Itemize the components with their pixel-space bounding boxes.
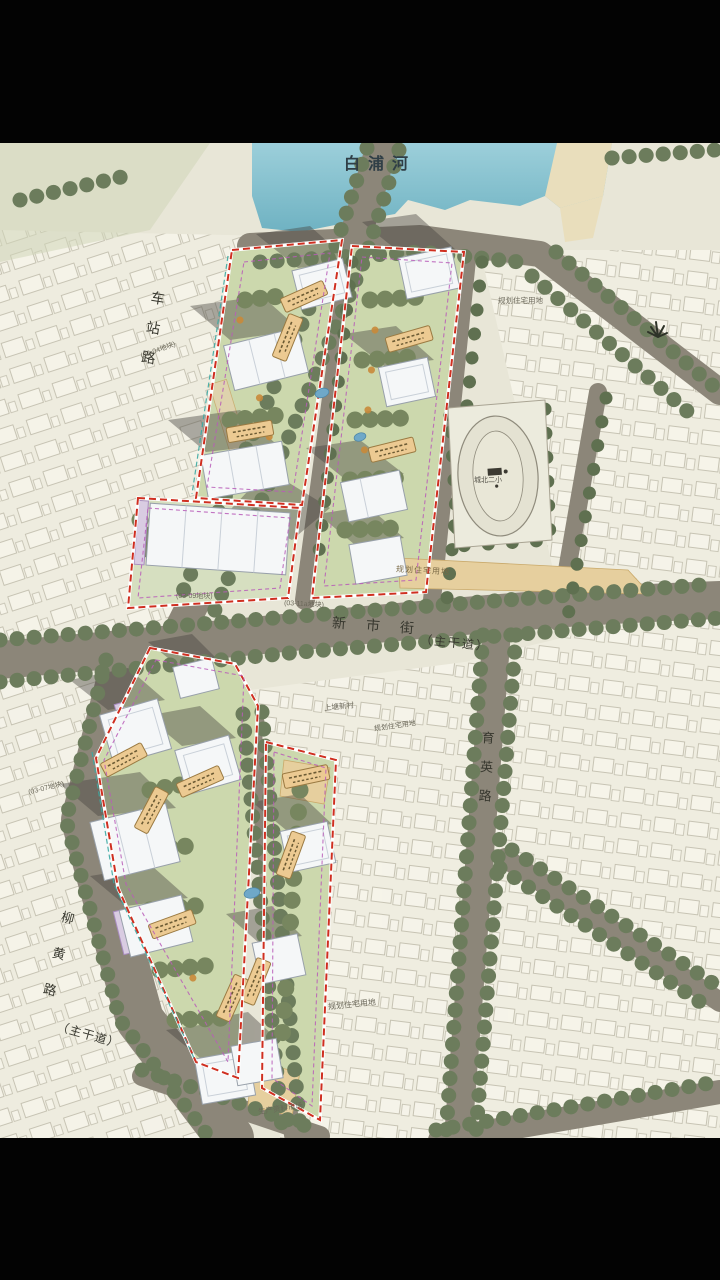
phone-screen: 白浦河 车站路 (03-04地块) 新市街 （主干道） 育英路 柳黄路 （主干道… bbox=[0, 0, 720, 1280]
building-central-slab bbox=[134, 500, 290, 574]
letterbox-bottom bbox=[0, 1138, 720, 1280]
school-sports-field bbox=[448, 400, 552, 548]
letterbox-top bbox=[0, 0, 720, 143]
site-plan-map[interactable]: 白浦河 车站路 (03-04地块) 新市街 （主干道） 育英路 柳黄路 （主干道… bbox=[0, 143, 720, 1138]
master-plan-drawing bbox=[0, 143, 720, 1138]
